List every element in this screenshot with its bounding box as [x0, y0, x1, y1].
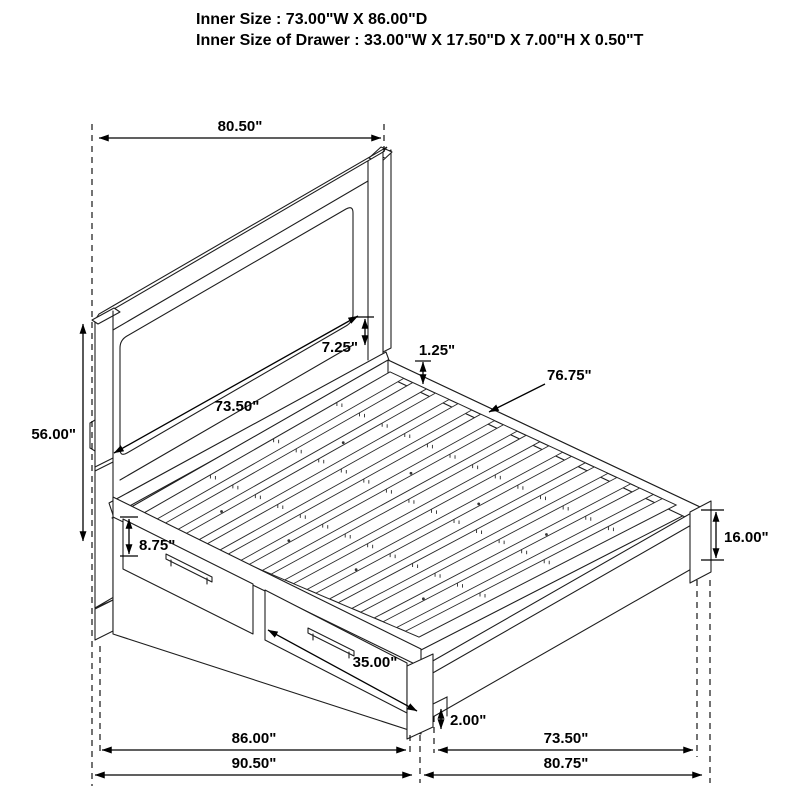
dim-panel-width-label: 73.50" — [215, 398, 260, 415]
footboard-left-leg — [407, 654, 433, 739]
dim-drawer-height-label: 8.75" — [139, 537, 175, 554]
dim-foot-inner-width-label: 73.50" — [544, 730, 589, 747]
dim-footboard-height-label: 16.00" — [724, 529, 769, 546]
title-block: Inner Size : 73.00"W X 86.00"D Inner Siz… — [196, 11, 644, 49]
dim-slat-thickness-label: 1.25" — [419, 342, 455, 359]
title-line-2: Inner Size of Drawer : 33.00"W X 17.50"D… — [196, 32, 644, 49]
dim-slat-length-label: 76.75" — [547, 367, 592, 384]
dim-foot-overall-width-label: 80.75" — [544, 755, 589, 772]
headboard-back-leg — [383, 150, 391, 352]
dim-top-width: 80.50" — [99, 118, 381, 138]
slat-dot — [287, 539, 290, 542]
dim-panel-gap-label: 7.25" — [322, 339, 358, 356]
bed-drawing — [90, 147, 711, 739]
diagram-canvas: 80.50" 56.00" 73.50" 7.25" 1.25" 76.75" — [0, 0, 800, 800]
dim-side-inner-length: 86.00" — [102, 730, 406, 750]
dim-side-inner-length-label: 86.00" — [232, 730, 277, 747]
slat-dot — [220, 510, 223, 513]
dim-side-overall-length-label: 90.50" — [232, 755, 277, 772]
dim-headboard-height-label: 56.00" — [31, 426, 76, 443]
dim-foot-inner-width: 73.50" — [438, 730, 693, 750]
dim-slat-length: 76.75" — [489, 367, 592, 412]
footboard-right-leg — [690, 501, 711, 583]
slat-dot — [477, 502, 480, 505]
dim-floor-clearance-label: 2.00" — [450, 712, 486, 729]
slat-dot — [545, 533, 548, 536]
dim-foot-overall-width: 80.75" — [424, 755, 702, 775]
dim-top-width-label: 80.50" — [218, 118, 263, 135]
title-line-1: Inner Size : 73.00"W X 86.00"D — [196, 11, 427, 28]
bed-dimension-diagram: 80.50" 56.00" 73.50" 7.25" 1.25" 76.75" — [0, 0, 800, 800]
dim-drawer-width-label: 35.00" — [353, 654, 398, 671]
dim-headboard-height: 56.00" — [31, 324, 83, 541]
slat-dot — [342, 441, 345, 444]
dim-floor-clearance: 2.00" — [441, 709, 486, 729]
slat-dot — [410, 472, 413, 475]
dim-side-overall-length: 90.50" — [95, 755, 412, 775]
